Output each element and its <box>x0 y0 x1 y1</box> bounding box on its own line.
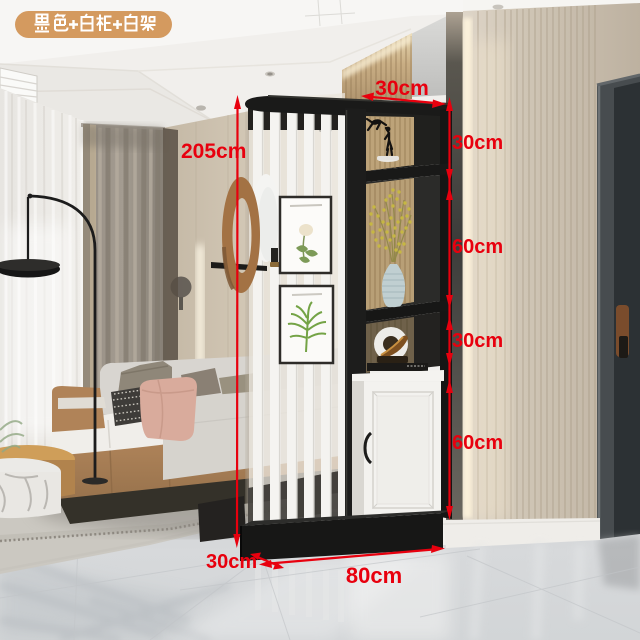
svg-text:60cm: 60cm <box>452 236 503 258</box>
svg-text:30cm: 30cm <box>452 132 503 154</box>
svg-text:80cm: 80cm <box>346 563 402 588</box>
svg-text:30cm: 30cm <box>206 551 257 573</box>
svg-text:30cm: 30cm <box>452 330 503 352</box>
svg-text:30cm: 30cm <box>375 77 429 100</box>
svg-text:60cm: 60cm <box>452 432 503 454</box>
